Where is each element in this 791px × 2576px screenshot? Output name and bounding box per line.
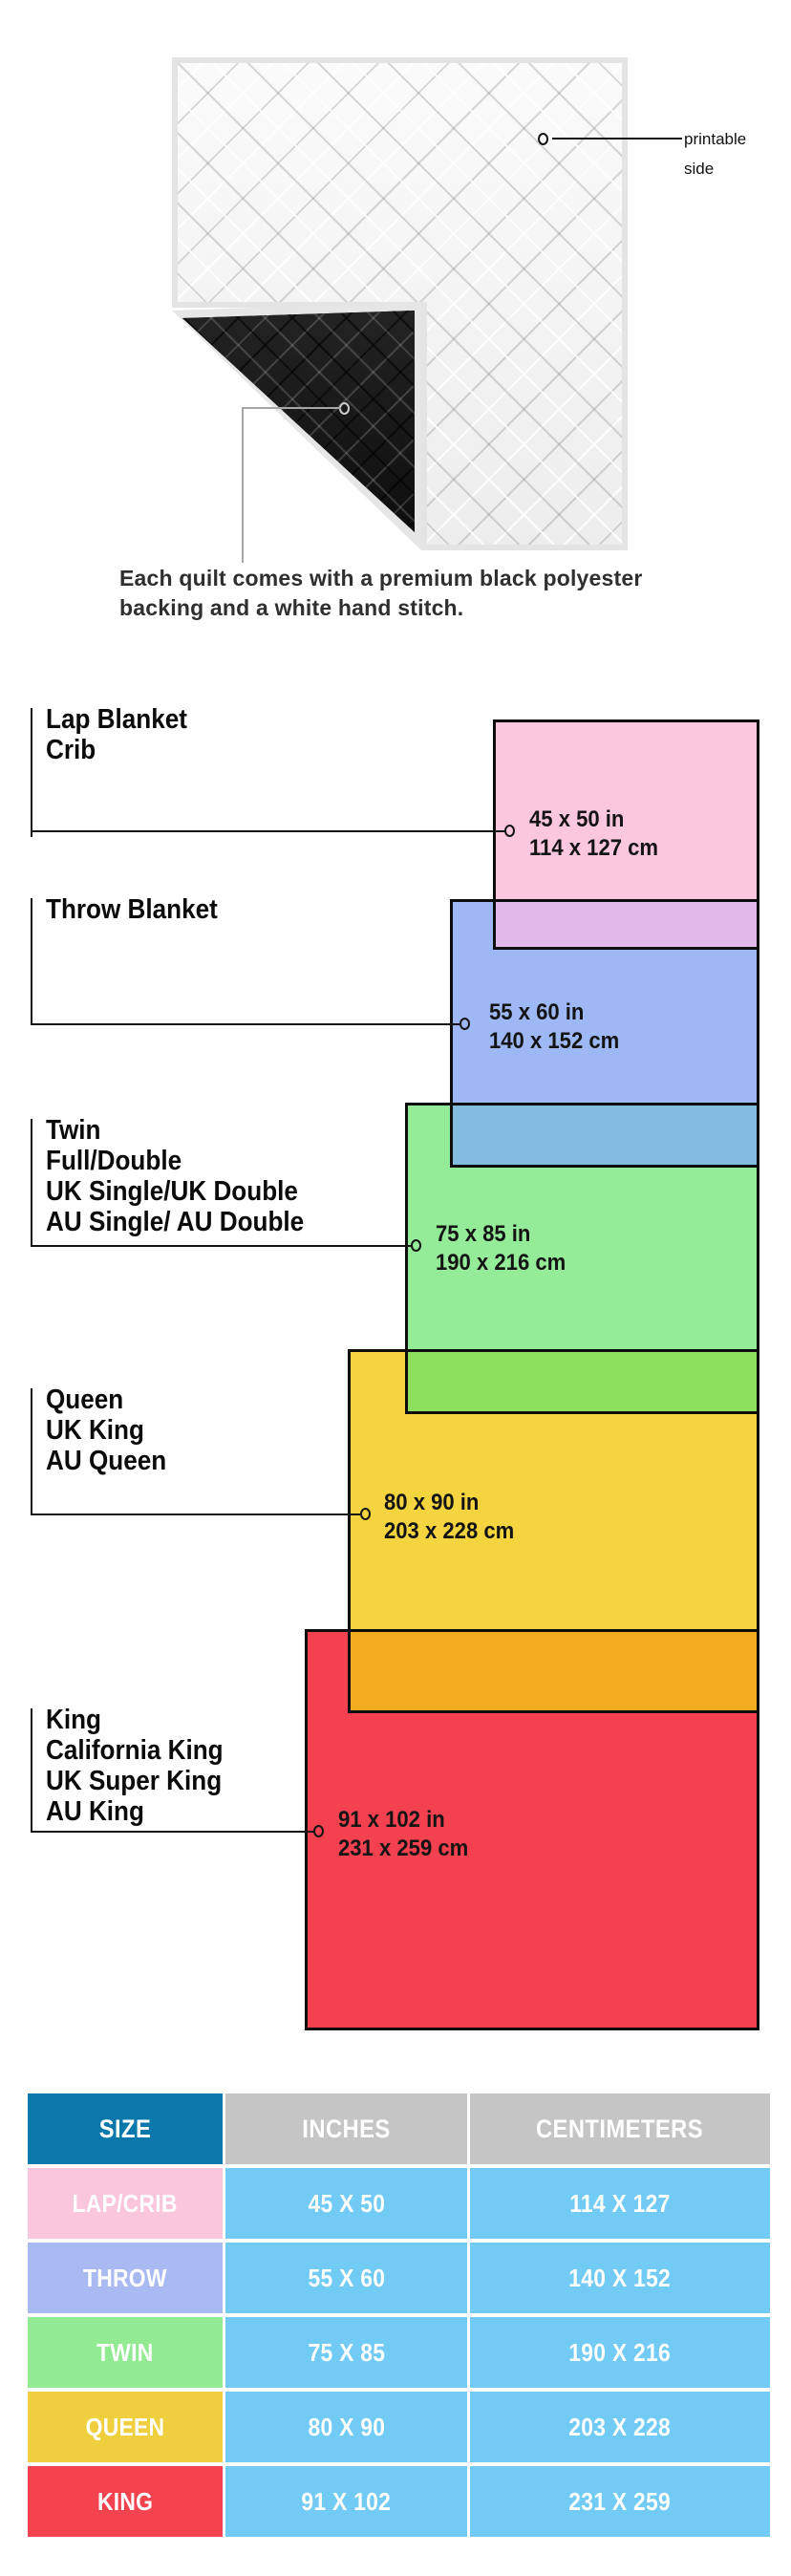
king-name-line: King [46, 1705, 224, 1735]
twin-marker-icon [411, 1239, 421, 1252]
table-header-size: SIZE [28, 2093, 223, 2164]
lap-dimensions-cm: 114 x 127 cm [529, 834, 658, 863]
quilt-folded-corner [172, 302, 421, 550]
throw-callout-line-h [31, 1023, 460, 1025]
king-dimensions-cm: 231 x 259 cm [338, 1835, 468, 1863]
throw-marker-icon [460, 1018, 470, 1030]
printable-side-callout-line [552, 138, 682, 140]
queen-size-label: Queen UK King AU Queen [46, 1385, 166, 1476]
black-backing-callout-line-h [242, 407, 341, 409]
table-row-lap-inches: 45 X 50 [225, 2168, 467, 2239]
table-row-twin-size: TWIN [28, 2317, 223, 2388]
printable-side-label: printable side [684, 124, 746, 183]
twin-dimensions: 75 x 85 in 190 x 216 cm [436, 1220, 566, 1277]
table-header-inches: INCHES [225, 2093, 467, 2164]
table-row-lap-cm: 114 X 127 [470, 2168, 770, 2239]
king-dimensions: 91 x 102 in 231 x 259 cm [338, 1806, 468, 1863]
table-row-throw-size: THROW [28, 2243, 223, 2313]
black-backing-callout-line-v [242, 407, 244, 563]
twin-name-line: AU Single/ AU Double [46, 1207, 304, 1237]
table-row-twin-cm: 190 X 216 [470, 2317, 770, 2388]
printable-side-label-line1: printable [684, 124, 746, 154]
lap-callout-line-h [31, 830, 504, 832]
queen-callout-line-v [31, 1388, 32, 1513]
lap-callout-line-v [31, 708, 32, 837]
king-name-line: AU King [46, 1796, 224, 1827]
table-row-lap-size: LAP/CRIB [28, 2168, 223, 2239]
king-callout-line-v [31, 1708, 32, 1831]
queen-marker-icon [360, 1508, 371, 1520]
quilt-black-backing-pattern [172, 302, 421, 550]
twin-name-line: Full/Double [46, 1146, 304, 1176]
printable-side-label-line2: side [684, 154, 746, 183]
table-row-king-cm: 231 X 259 [470, 2466, 770, 2537]
table-row-queen-cm: 203 X 228 [470, 2392, 770, 2462]
queen-name-line: UK King [46, 1415, 166, 1446]
table-row-king-inches: 91 X 102 [225, 2466, 467, 2537]
table-row-queen-size: QUEEN [28, 2392, 223, 2462]
king-dimensions-inches: 91 x 102 in [338, 1806, 468, 1835]
throw-size-label: Throw Blanket [46, 894, 218, 925]
table-row-queen-inches: 80 X 90 [225, 2392, 467, 2462]
printable-side-marker-icon [538, 133, 548, 145]
queen-dimensions-inches: 80 x 90 in [384, 1489, 514, 1517]
table-row-throw-inches: 55 X 60 [225, 2243, 467, 2313]
queen-callout-line-h [31, 1513, 360, 1515]
king-size-label: King California King UK Super King AU Ki… [46, 1705, 224, 1827]
twin-dimensions-inches: 75 x 85 in [436, 1220, 566, 1249]
throw-name-line: Throw Blanket [46, 894, 218, 925]
king-name-line: California King [46, 1735, 224, 1766]
queen-name-line: AU Queen [46, 1446, 166, 1476]
twin-name-line: UK Single/UK Double [46, 1176, 304, 1207]
queen-name-line: Queen [46, 1385, 166, 1415]
throw-dimensions: 55 x 60 in 140 x 152 cm [489, 998, 619, 1056]
lap-name-line: Lap Blanket [46, 704, 187, 735]
table-row-twin-inches: 75 X 85 [225, 2317, 467, 2388]
twin-callout-line-v [31, 1119, 32, 1245]
twin-dimensions-cm: 190 x 216 cm [436, 1249, 566, 1277]
queen-dimensions-cm: 203 x 228 cm [384, 1517, 514, 1546]
lap-dimensions: 45 x 50 in 114 x 127 cm [529, 805, 658, 863]
lap-dimensions-inches: 45 x 50 in [529, 805, 658, 834]
throw-callout-line-v [31, 898, 32, 1023]
table-row-king-size: KING [28, 2466, 223, 2537]
quilt-size-chart-page: printable side Each quilt comes with a p… [0, 0, 791, 2576]
table-header-centimeters: CENTIMETERS [470, 2093, 770, 2164]
king-name-line: UK Super King [46, 1766, 224, 1796]
twin-callout-line-h [31, 1245, 411, 1247]
twin-size-label: Twin Full/Double UK Single/UK Double AU … [46, 1115, 304, 1237]
lap-name-line: Crib [46, 735, 187, 765]
king-callout-line-h [31, 1831, 313, 1833]
throw-dimensions-cm: 140 x 152 cm [489, 1027, 619, 1056]
queen-dimensions: 80 x 90 in 203 x 228 cm [384, 1489, 514, 1546]
size-table: SIZE INCHES CENTIMETERS LAP/CRIB 45 X 50… [28, 2093, 770, 2537]
hero-caption: Each quilt comes with a premium black po… [119, 564, 683, 623]
king-marker-icon [313, 1825, 324, 1837]
lap-size-label: Lap Blanket Crib [46, 704, 187, 765]
lap-marker-icon [504, 825, 515, 837]
throw-dimensions-inches: 55 x 60 in [489, 998, 619, 1027]
twin-name-line: Twin [46, 1115, 304, 1146]
table-row-throw-cm: 140 X 152 [470, 2243, 770, 2313]
